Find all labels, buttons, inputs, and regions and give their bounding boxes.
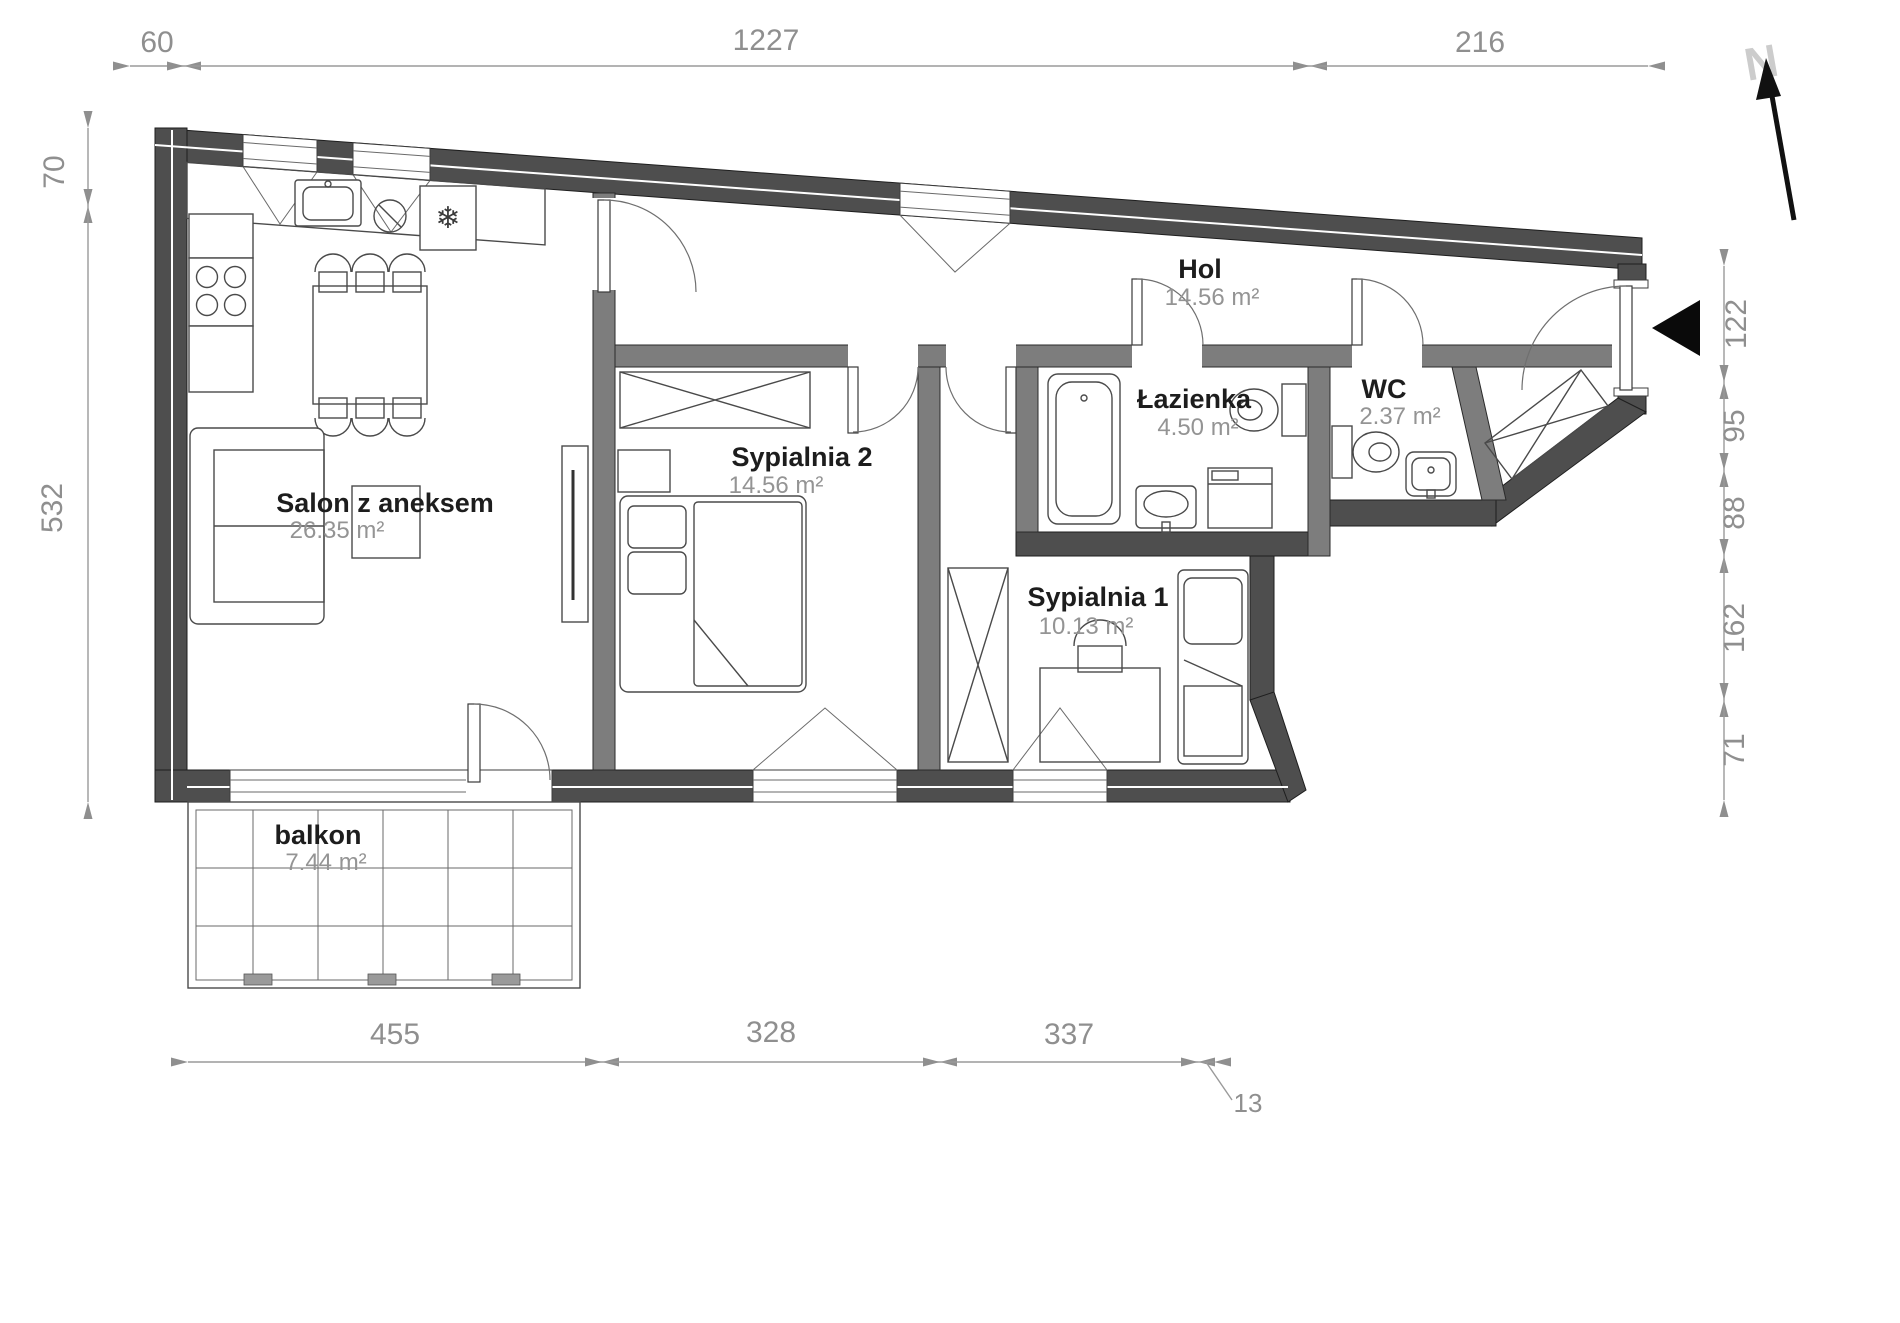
dimension-left: 70 532 bbox=[36, 128, 88, 802]
double-bed bbox=[620, 496, 806, 692]
kitchen-hall-door bbox=[591, 198, 696, 292]
balcony bbox=[188, 802, 580, 988]
room-area-wc: 2.37 m² bbox=[1359, 403, 1440, 430]
dim-top-1227: 1227 bbox=[733, 24, 800, 57]
fridge-icon: ❄ bbox=[420, 186, 476, 250]
bedroom1-window bbox=[1013, 708, 1107, 802]
railing-post bbox=[492, 974, 520, 985]
room-label-salon: Salon z aneksem bbox=[276, 488, 494, 518]
dim-top-60: 60 bbox=[140, 26, 173, 59]
dim-right-162: 162 bbox=[1718, 603, 1751, 653]
room-label-sypialnia2: Sypialnia 2 bbox=[731, 442, 872, 472]
dim-left-532: 532 bbox=[36, 483, 69, 533]
entrance-marker-icon bbox=[1652, 300, 1700, 356]
dimension-right: 122 95 88 162 71 bbox=[1718, 266, 1753, 800]
bedroom2-window bbox=[753, 708, 897, 802]
room-label-wc: WC bbox=[1362, 374, 1407, 404]
fridge-snowflake-icon: ❄ bbox=[435, 202, 460, 235]
tv-stand bbox=[562, 446, 588, 622]
bedroom1-door bbox=[946, 343, 1016, 433]
bedroom2-furniture bbox=[618, 372, 810, 692]
dim-right-71: 71 bbox=[1718, 733, 1751, 766]
wc-fixtures bbox=[1332, 426, 1456, 498]
room-area-salon: 26.35 m² bbox=[290, 517, 385, 544]
dimension-top: 60 1227 216 bbox=[130, 24, 1648, 66]
kitchen-lower-cabinet bbox=[189, 326, 253, 392]
room-area-lazienka: 4.50 m² bbox=[1157, 414, 1238, 441]
floor-plan-drawing: ❄ bbox=[0, 0, 1900, 1323]
dining-table bbox=[313, 286, 427, 404]
bathroom-sink-icon bbox=[1136, 486, 1196, 532]
single-bed bbox=[1178, 570, 1248, 764]
washing-machine-icon bbox=[1208, 468, 1272, 528]
room-label-sypialnia1: Sypialnia 1 bbox=[1027, 582, 1168, 612]
dining-set bbox=[313, 254, 427, 436]
railing-post bbox=[244, 974, 272, 985]
dim-top-216: 216 bbox=[1455, 26, 1505, 59]
dimension-bottom: 455 328 337 13 bbox=[188, 1016, 1262, 1118]
room-label-balkon: balkon bbox=[274, 820, 361, 850]
dim-left-70: 70 bbox=[38, 155, 71, 188]
nightstand bbox=[618, 450, 670, 492]
hall-window bbox=[900, 183, 1010, 272]
dishwasher-icon bbox=[374, 200, 406, 232]
bedroom2-door bbox=[848, 343, 918, 433]
kitchen-cabinet bbox=[189, 214, 253, 258]
salon-balcony-window bbox=[230, 770, 552, 802]
desk-and-chair bbox=[1040, 620, 1160, 762]
dim-bottom-13: 13 bbox=[1234, 1088, 1263, 1118]
wardrobe-icon bbox=[620, 372, 810, 428]
entrance-door bbox=[1522, 280, 1650, 396]
room-area-sypialnia1: 10.13 m² bbox=[1039, 613, 1134, 640]
dim-right-122: 122 bbox=[1720, 299, 1753, 349]
kitchen-window-2 bbox=[353, 143, 430, 232]
dim-bottom-328: 328 bbox=[746, 1016, 796, 1049]
dim-right-95: 95 bbox=[1718, 409, 1751, 442]
toilet-icon bbox=[1332, 426, 1399, 478]
room-area-balkon: 7.44 m² bbox=[285, 849, 366, 876]
dim-bottom-337: 337 bbox=[1044, 1018, 1094, 1051]
room-area-sypialnia2: 14.56 m² bbox=[729, 472, 824, 499]
floor-plan-page: ❄ bbox=[0, 0, 1900, 1323]
dim-bottom-455: 455 bbox=[370, 1018, 420, 1051]
railing-post bbox=[368, 974, 396, 985]
bathtub-icon bbox=[1048, 374, 1120, 524]
wc-door bbox=[1352, 279, 1423, 369]
room-area-hol: 14.56 m² bbox=[1165, 284, 1260, 311]
wardrobe-icon bbox=[948, 568, 1008, 762]
room-label-hol: Hol bbox=[1178, 254, 1222, 284]
kitchen-sink-icon bbox=[295, 180, 361, 226]
dim-right-88: 88 bbox=[1718, 496, 1751, 529]
stove-icon bbox=[189, 258, 253, 326]
room-label-lazienka: Łazienka bbox=[1137, 384, 1252, 414]
north-arrow: N bbox=[1740, 34, 1794, 220]
wc-sink-icon bbox=[1406, 452, 1456, 498]
